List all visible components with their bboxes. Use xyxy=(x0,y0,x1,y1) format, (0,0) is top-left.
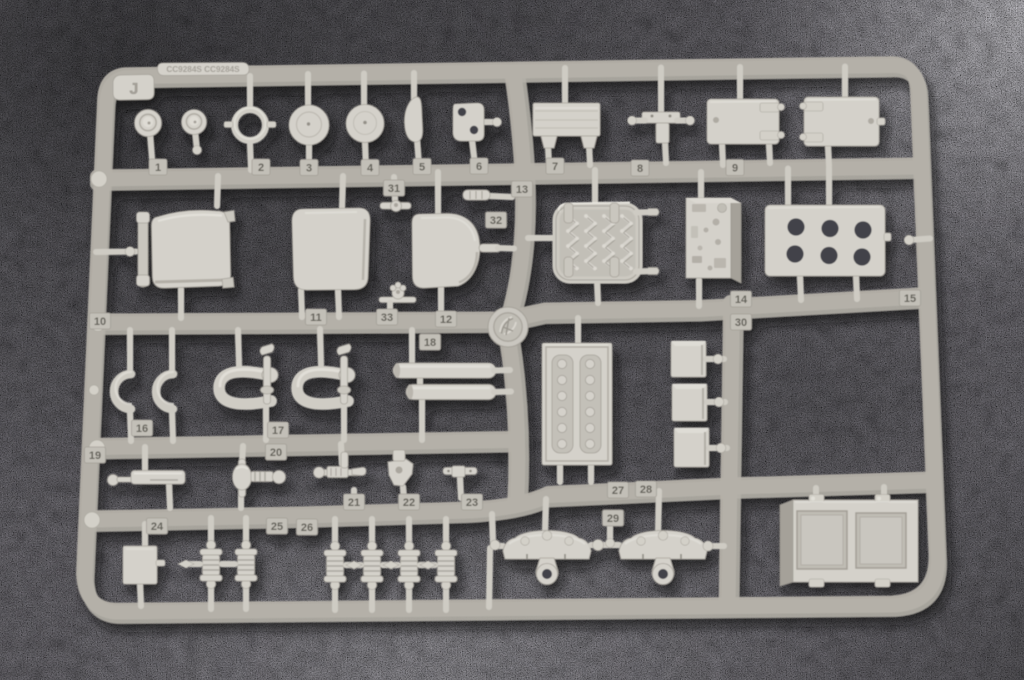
svg-text:2: 2 xyxy=(258,162,264,174)
svg-text:18: 18 xyxy=(424,337,436,349)
svg-text:28: 28 xyxy=(640,484,652,496)
svg-text:27: 27 xyxy=(612,485,624,497)
svg-text:24: 24 xyxy=(151,521,164,533)
svg-text:16: 16 xyxy=(136,423,148,435)
svg-text:25: 25 xyxy=(271,521,283,533)
svg-text:17: 17 xyxy=(272,425,284,437)
svg-text:4: 4 xyxy=(367,163,374,175)
svg-text:31: 31 xyxy=(388,183,400,195)
svg-text:20: 20 xyxy=(270,447,282,459)
svg-text:11: 11 xyxy=(310,312,322,324)
svg-text:22: 22 xyxy=(403,497,415,509)
svg-text:30: 30 xyxy=(735,317,747,329)
svg-text:19: 19 xyxy=(89,450,101,462)
svg-text:J: J xyxy=(130,81,139,98)
svg-text:12: 12 xyxy=(440,314,452,326)
svg-text:32: 32 xyxy=(490,215,502,227)
svg-text:14: 14 xyxy=(735,294,748,306)
svg-text:5: 5 xyxy=(419,162,425,174)
svg-text:15: 15 xyxy=(904,293,916,305)
svg-text:8: 8 xyxy=(637,163,643,175)
svg-text:CC9284S CC9284S: CC9284S CC9284S xyxy=(166,65,240,74)
svg-text:10: 10 xyxy=(94,316,106,328)
svg-text:21: 21 xyxy=(348,497,360,509)
svg-text:33: 33 xyxy=(381,312,393,324)
svg-text:7: 7 xyxy=(552,161,558,173)
svg-text:23: 23 xyxy=(466,497,478,509)
svg-text:13: 13 xyxy=(516,184,528,196)
svg-text:1: 1 xyxy=(155,162,161,174)
svg-text:3: 3 xyxy=(306,163,312,175)
svg-text:29: 29 xyxy=(607,513,619,525)
svg-text:9: 9 xyxy=(732,163,738,175)
svg-text:6: 6 xyxy=(476,161,482,173)
svg-text:26: 26 xyxy=(301,522,313,534)
